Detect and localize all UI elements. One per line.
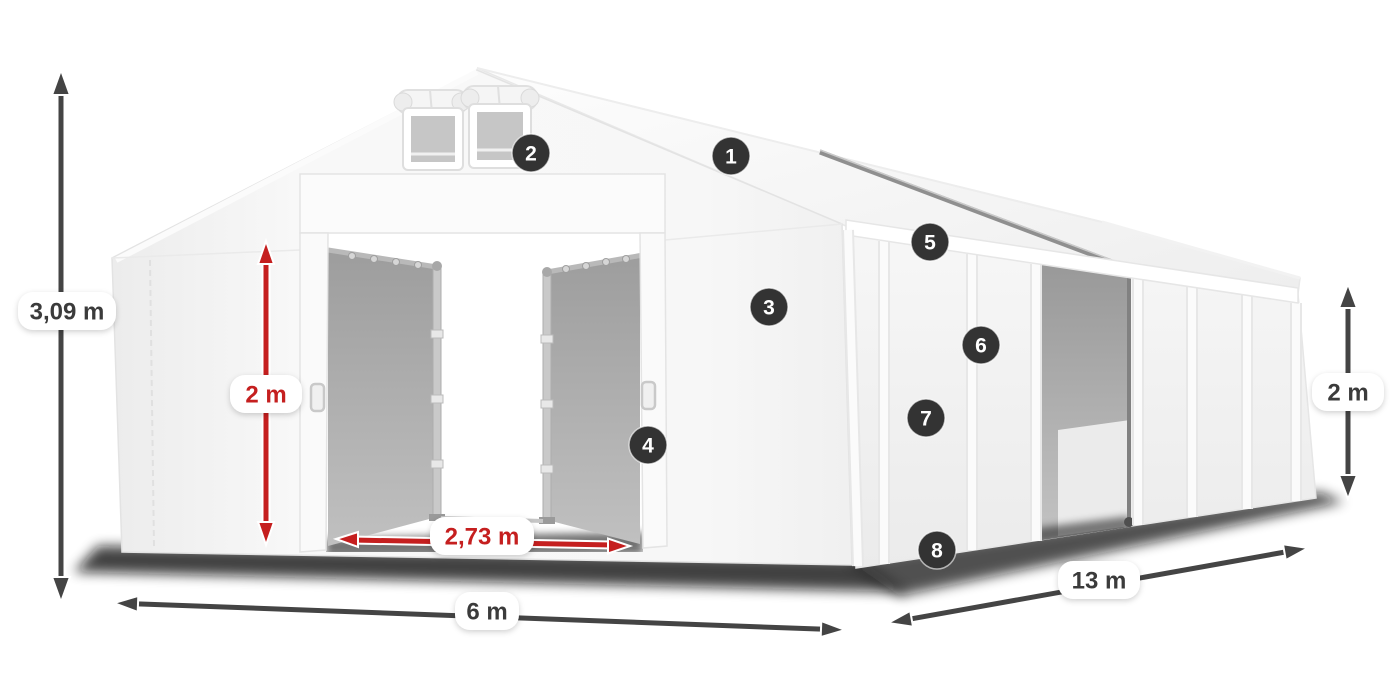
badge-6: 6 — [962, 326, 1000, 364]
arrowhead-right — [821, 621, 845, 637]
badge-3-number: 3 — [763, 297, 775, 320]
right-door-corner-joint — [542, 267, 552, 277]
badge-3: 3 — [750, 288, 788, 326]
arrowhead-up — [1339, 284, 1357, 308]
badge-1: 1 — [712, 137, 750, 175]
left-pole-clip — [431, 330, 443, 338]
total-height-dimension: 3,09 m — [18, 70, 116, 602]
arrowhead-right — [1283, 544, 1308, 560]
door-height-label: 2 m — [245, 382, 286, 409]
left-door-pole — [433, 266, 441, 518]
badge-2-number: 2 — [525, 143, 537, 166]
left-door-tarp — [328, 250, 433, 546]
left-pole-clip — [431, 395, 443, 403]
badge-5: 5 — [911, 223, 949, 261]
arrowhead-left — [114, 596, 138, 612]
right-door-tarp — [551, 254, 640, 544]
badge-6-number: 6 — [975, 335, 987, 358]
badge-1-number: 1 — [725, 146, 737, 169]
tent — [112, 68, 1316, 568]
badge-8: 8 — [918, 531, 956, 569]
right-pole-clip — [541, 335, 553, 343]
arrowhead-down — [1339, 475, 1357, 499]
right-pole-clip — [541, 400, 553, 408]
entrance-left-door — [328, 250, 445, 546]
door-width-label: 2,73 m — [445, 524, 520, 551]
entrance-top-beam — [300, 174, 665, 233]
tent-diagram-canvas: 3,09 m 2 m 2,73 m 6 m — [0, 0, 1400, 700]
badge-7-number: 7 — [920, 408, 932, 431]
entrance — [300, 174, 667, 556]
front-width-label: 6 m — [466, 599, 507, 626]
right-door-pole — [543, 271, 551, 523]
entrance-right-door — [539, 254, 643, 544]
side-length-label: 13 m — [1072, 568, 1127, 595]
front-width-dimension: 6 m — [114, 592, 845, 637]
right-door-handle — [642, 382, 655, 409]
vent-window-left — [394, 90, 470, 170]
badge-5-number: 5 — [924, 232, 936, 255]
arrowhead-left — [888, 611, 913, 627]
badge-2: 2 — [512, 134, 550, 172]
badge-4: 4 — [629, 426, 667, 464]
badge-7: 7 — [907, 399, 945, 437]
total-height-label: 3,09 m — [30, 299, 105, 326]
left-door-handle — [311, 384, 324, 411]
right-pole-clip — [541, 465, 553, 473]
left-pole-clip — [431, 460, 443, 468]
side-height-label: 2 m — [1327, 380, 1368, 407]
badge-8-number: 8 — [931, 540, 943, 563]
tent-diagram-stage: 3,09 m 2 m 2,73 m 6 m — [0, 0, 1400, 700]
side-height-dimension: 2 m — [1312, 284, 1384, 499]
arrowhead-down — [52, 577, 70, 602]
arrowhead-up — [52, 70, 70, 95]
badge-4-number: 4 — [642, 435, 654, 458]
left-door-corner-joint — [432, 261, 442, 271]
